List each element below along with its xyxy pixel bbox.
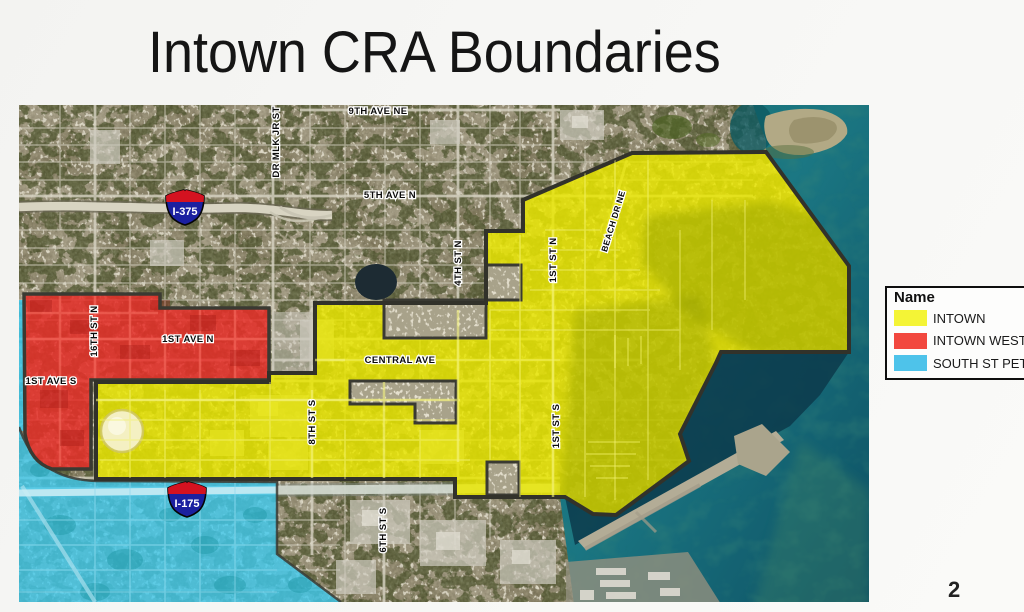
svg-text:1ST AVE N: 1ST AVE N (162, 334, 214, 345)
svg-text:9TH AVE NE: 9TH AVE NE (349, 106, 408, 117)
svg-text:CENTRAL AVE: CENTRAL AVE (365, 355, 436, 366)
svg-text:16TH ST N: 16TH ST N (89, 305, 100, 356)
svg-text:DR MLK JR ST: DR MLK JR ST (271, 106, 282, 177)
svg-text:I-175: I-175 (174, 498, 199, 510)
svg-text:4TH ST N: 4TH ST N (453, 240, 464, 285)
svg-text:5TH AVE N: 5TH AVE N (364, 190, 416, 201)
svg-text:1ST ST N: 1ST ST N (548, 238, 559, 283)
svg-text:1ST AVE S: 1ST AVE S (25, 376, 76, 387)
svg-text:6TH ST S: 6TH ST S (378, 508, 389, 553)
svg-text:I-375: I-375 (172, 206, 197, 218)
svg-text:1ST ST S: 1ST ST S (551, 404, 562, 448)
svg-text:8TH ST S: 8TH ST S (307, 400, 318, 445)
